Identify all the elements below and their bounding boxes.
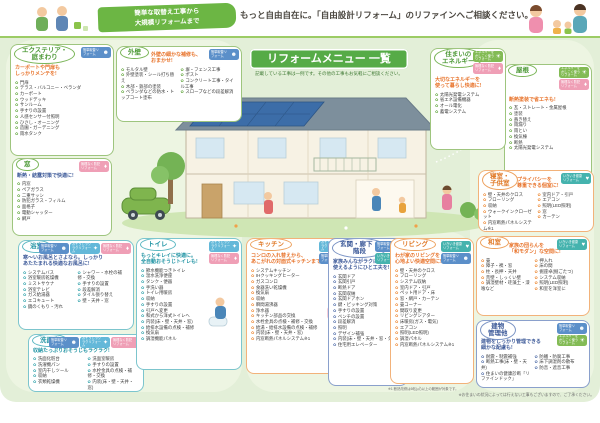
- flower-bullet-icon: ✿: [435, 92, 438, 97]
- flower-bullet-icon: ✿: [33, 362, 36, 367]
- badge-bouhan: 無理なく防犯リフォーム♦: [79, 161, 109, 172]
- badge-label: いきいき健康リフォーム: [563, 175, 584, 182]
- badge-energy: エネルギーをかしこく使うリフォーム☀: [559, 67, 589, 78]
- flower-bullet-icon: ✿: [88, 368, 91, 373]
- flower-bullet-icon: ✿: [15, 102, 18, 107]
- badge-group: 簡単取替リフォーム☻おそうじラクラクリフォーム✦無理なく防犯リフォーム♦: [39, 243, 131, 254]
- flower-bullet-icon: ✿: [121, 84, 124, 89]
- menu-item: ✿コンクリート工事・タイル工事: [181, 78, 238, 89]
- flower-bullet-icon: ✿: [15, 108, 18, 113]
- flower-bullet-icon: ✿: [251, 290, 254, 295]
- toilet-figure-illustration: [205, 295, 233, 329]
- flower-bullet-icon: ✿: [535, 365, 538, 370]
- flower-bullet-icon: ✿: [121, 89, 124, 94]
- menu-list: ✿畳✿障子・襖・窓✿柱・長押・天井✿荒壁・しっくい壁✿調湿壁材・珪藻土・漆喰など: [481, 258, 532, 292]
- section-tagline: 断熱・結露対策で快適に!: [17, 173, 107, 179]
- heart-icon: ♥: [581, 242, 585, 248]
- menu-item: ✿鏡のくもり・汚れ: [23, 304, 75, 310]
- badge-kenko: いきいき健康リフォーム♥: [441, 241, 471, 252]
- menu-list: ✿押入れ✿床の間✿掘座卓(掘ごたつ)✿システム収納✿照明(LED照明)✿和室を洋…: [535, 258, 586, 292]
- section-title: トイレ: [140, 238, 176, 251]
- flower-bullet-icon: ✿: [509, 128, 512, 133]
- header-headline: もっと自由自在に。「自由設計リフォーム」のリファインへご相談ください。: [240, 11, 540, 20]
- badge-label: いきいき健康リフォーム: [559, 241, 580, 248]
- flower-bullet-icon: ✿: [251, 268, 254, 273]
- section-energy: 住まいの エネルギー エネルギーをかしこく使うリフォーム☀無理なく防犯リフォーム…: [430, 48, 506, 150]
- flower-bullet-icon: ✿: [509, 134, 512, 139]
- badge-petit: 簡単取替リフォーム☻: [441, 253, 471, 264]
- badge-petit: 簡単取替リフォーム☻: [209, 49, 239, 60]
- badge-label: 簡単取替リフォーム: [443, 255, 462, 262]
- flower-bullet-icon: ✿: [535, 354, 538, 359]
- flower-bullet-icon: ✿: [538, 209, 541, 214]
- flower-bullet-icon: ✿: [435, 109, 438, 114]
- flower-bullet-icon: ✿: [535, 280, 538, 285]
- open-room: [356, 180, 414, 218]
- section-tatemono: 建物 管理他 簡単取替リフォーム☻エネルギーをかしこく使うリフォーム☀ 建物をし…: [476, 320, 590, 388]
- flower-bullet-icon: ✿: [435, 103, 438, 108]
- flower-bullet-icon: ✿: [481, 280, 484, 285]
- badge-label: おそうじラクラクリフォーム: [82, 337, 102, 348]
- header-ribbon: 簡単な取替え工事から 大規模リフォームまで: [98, 3, 237, 33]
- flower-bullet-icon: ✿: [251, 302, 254, 307]
- family-icon: ☻: [463, 256, 469, 262]
- section-gaiheki: 外壁 簡単取替リフォーム☻ 外壁の細かな補修も、 おまかせ! ✿モルタル壁✿外壁…: [116, 46, 242, 122]
- badge-kenko: いきいき健康リフォーム♥: [557, 239, 587, 250]
- section-toilet: トイレ おそうじラクラクリフォーム✦無理なく防犯リフォーム♦ もっとキレイに快適…: [136, 238, 242, 370]
- flower-bullet-icon: ✿: [538, 203, 541, 208]
- family-icon: ☻: [231, 52, 237, 58]
- flower-bullet-icon: ✿: [481, 359, 484, 364]
- badge-label: 簡単取替リフォーム: [211, 51, 230, 58]
- flower-bullet-icon: ✿: [17, 210, 20, 215]
- flower-bullet-icon: ✿: [481, 354, 484, 359]
- flower-bullet-icon: ✿: [141, 325, 144, 330]
- badge-group: いきいき健康リフォーム♥: [561, 173, 591, 184]
- menu-list: ✿壁・天井のクロス✿フローリング✿システム収納✿室内ドア・引戸✿ペット用ドア・床…: [395, 268, 469, 348]
- flower-bullet-icon: ✿: [483, 203, 486, 208]
- badge-bouhan: 無理なく防犯リフォーム♦: [473, 63, 503, 74]
- flower-bullet-icon: ✿: [88, 391, 91, 392]
- flower-bullet-icon: ✿: [17, 198, 20, 203]
- badge-label: 無理なく防犯リフォーム: [81, 163, 103, 170]
- flower-bullet-icon: ✿: [333, 342, 336, 347]
- section-title: 屋根: [508, 64, 537, 77]
- section-title: 外壁: [120, 46, 149, 59]
- bag-icon: ♦: [584, 82, 587, 88]
- flower-bullet-icon: ✿: [23, 292, 26, 297]
- menu-item: ✿内装(床・壁・天井・窓): [88, 379, 140, 390]
- badge-group: エネルギーをかしこく使うリフォーム☀無理なく防犯リフォーム♦: [559, 67, 589, 90]
- flower-bullet-icon: ✿: [333, 336, 336, 341]
- flower-bullet-icon: ✿: [395, 330, 398, 335]
- menu-item: ✿給湯・給排水設備の点検・補修: [88, 391, 140, 392]
- menu-list: ✿塀・フェンス工事✿ポスト✿コンクリート工事・タイル工事✿スロープなどの段差解消: [181, 67, 238, 101]
- flower-bullet-icon: ✿: [395, 336, 398, 341]
- family-icon: ☻: [71, 340, 77, 346]
- flower-bullet-icon: ✿: [333, 274, 336, 279]
- person-figure: [264, 200, 273, 214]
- menu-item: ✿内窓断熱パネルシステム※1: [483, 220, 535, 231]
- flower-bullet-icon: ✿: [395, 273, 398, 278]
- section-title: キッチン: [250, 238, 292, 251]
- section-yane: 屋根 エネルギーをかしこく使うリフォーム☀無理なく防犯リフォーム♦ 断熱塗装で省…: [504, 64, 592, 182]
- flower-bullet-icon: ✿: [141, 330, 144, 335]
- menu-list: ✿壁・天井のクロス✿フローリング✿収納✿ウォークインクローゼット✿内窓断熱パネル…: [483, 192, 535, 232]
- bag-icon: ♦: [126, 246, 129, 252]
- flower-bullet-icon: ✿: [251, 285, 254, 290]
- flower-bullet-icon: ✿: [333, 285, 336, 290]
- flower-bullet-icon: ✿: [15, 131, 18, 136]
- menu-list: ✿洗面化粧台✿洗濯機パン✿室内干しツール✿収納✿衣類乾燥機: [33, 356, 85, 392]
- flower-bullet-icon: ✿: [141, 319, 144, 324]
- badge-group: いきいき健康リフォーム♥: [557, 239, 587, 250]
- flower-bullet-icon: ✿: [17, 193, 20, 198]
- flower-bullet-icon: ✿: [535, 286, 538, 291]
- section-senmen: 洗面室 簡単取替リフォーム☻おそうじラクラクリフォーム✦無理なく防犯リフォーム♦…: [28, 334, 144, 392]
- flower-bullet-icon: ✿: [509, 117, 512, 122]
- flower-bullet-icon: ✿: [88, 379, 91, 384]
- sparkle-icon: ✦: [103, 340, 108, 346]
- badge-label: エネルギーをかしこく使うリフォーム: [561, 67, 581, 78]
- menu-list: ✿門扉✿テラス・バルコニー・ベランダ✿カーポート✿ウッドデッキ✿サンルーム✿手す…: [15, 80, 109, 137]
- badge-souji: おそうじラクラクリフォーム✦: [70, 243, 100, 254]
- flower-bullet-icon: ✿: [395, 308, 398, 313]
- badge-petit: 簡単取替リフォーム☻: [81, 47, 111, 58]
- badge-group: 簡単取替リフォーム☻エネルギーをかしこく使うリフォーム☀: [557, 323, 587, 346]
- sparkle-icon: ✦: [232, 244, 237, 250]
- flower-bullet-icon: ✿: [33, 373, 36, 378]
- flower-bullet-icon: ✿: [251, 273, 254, 278]
- menu-list: ✿節水機能つきトイレ✿温水洗浄便座✿タンク・便器✿手洗い器✿トイレ用暖房✿収納✿…: [141, 268, 207, 342]
- flower-bullet-icon: ✿: [535, 275, 538, 280]
- menu-item: ✿太陽光発電システム: [509, 145, 587, 151]
- front-door: [202, 184, 222, 218]
- section-mado: 窓 無理なく防犯リフォーム♦ 断熱・結露対策で快適に! ✿内窓✿ペアガラス✿二重…: [12, 158, 112, 236]
- menu-item: ✿雨水タンク: [15, 131, 109, 137]
- menu-item: ✿断熱工事(床・壁・天井): [481, 359, 532, 370]
- flower-bullet-icon: ✿: [121, 72, 124, 77]
- flower-bullet-icon: ✿: [395, 279, 398, 284]
- badge-bouhan: 無理なく防犯リフォーム♦: [559, 79, 589, 90]
- menu-item: ✿住まいの健康診断「リファインドック」: [481, 371, 532, 382]
- section-living: リビング いきいき健康リフォーム♥簡単取替リフォーム☻ わが家のリビングを 心地…: [390, 238, 474, 384]
- left-family-illustration: [28, 4, 94, 34]
- flower-bullet-icon: ✿: [538, 197, 541, 202]
- flower-bullet-icon: ✿: [141, 336, 144, 341]
- flower-bullet-icon: ✿: [395, 290, 398, 295]
- window-1f: [234, 182, 264, 204]
- flower-bullet-icon: ✿: [33, 368, 36, 373]
- flower-bullet-icon: ✿: [15, 114, 18, 119]
- flower-bullet-icon: ✿: [141, 285, 144, 290]
- window-1f: [284, 182, 318, 204]
- badge-label: 簡単取替リフォーム: [83, 49, 102, 56]
- flower-bullet-icon: ✿: [395, 268, 398, 273]
- flower-bullet-icon: ✿: [251, 336, 254, 341]
- flower-bullet-icon: ✿: [141, 273, 144, 278]
- flower-bullet-icon: ✿: [15, 120, 18, 125]
- flower-bullet-icon: ✿: [23, 304, 26, 309]
- flower-bullet-icon: ✿: [538, 214, 541, 219]
- sun-icon: ☀: [582, 70, 587, 76]
- flower-bullet-icon: ✿: [395, 285, 398, 290]
- flower-bullet-icon: ✿: [509, 105, 512, 110]
- flower-bullet-icon: ✿: [121, 67, 124, 72]
- menu-item: ✿外壁塗装・シール打ち替え: [121, 72, 178, 83]
- flower-bullet-icon: ✿: [333, 331, 336, 336]
- menu-list: ✿シャワー・水栓の補修・交換✿手すりの設置✿段差解消✿タイル張り替え✿壁・天井・…: [78, 270, 130, 310]
- flower-bullet-icon: ✿: [481, 371, 484, 376]
- badge-label: おそうじラクラクリフォーム: [72, 243, 92, 254]
- flower-bullet-icon: ✿: [395, 302, 398, 307]
- menu-item: ✿和室を洋室に: [535, 286, 586, 292]
- flower-bullet-icon: ✿: [33, 356, 36, 361]
- flower-bullet-icon: ✿: [395, 296, 398, 301]
- section-exterior: エクステリア・ 庭まわり 簡単取替リフォーム☻ カーポートや門扉も しっかりメン…: [10, 44, 114, 156]
- window-2f: [320, 138, 346, 158]
- flower-bullet-icon: ✿: [483, 220, 486, 225]
- flower-bullet-icon: ✿: [141, 296, 144, 301]
- flower-bullet-icon: ✿: [23, 281, 26, 286]
- flower-bullet-icon: ✿: [251, 296, 254, 301]
- badge-group: 簡単取替リフォーム☻: [81, 47, 111, 58]
- section-title: リビング: [394, 238, 436, 251]
- flower-bullet-icon: ✿: [435, 97, 438, 102]
- badge-souji: おそうじラクラクリフォーム✦: [80, 337, 110, 348]
- section-title: 寝室・ 子供室: [482, 170, 518, 190]
- sun-icon: ☀: [580, 338, 585, 344]
- flower-bullet-icon: ✿: [78, 281, 81, 286]
- flower-bullet-icon: ✿: [251, 330, 254, 335]
- window-2f: [258, 138, 286, 158]
- header: 簡単な取替え工事から 大規模リフォームまで もっと自由自在に。「自由設計リフォー…: [0, 0, 600, 38]
- menu-item: ✿ベランダなどの防水・トップコート塗布: [121, 89, 178, 100]
- footnote-insulation: ※1 断熱改修は6帖(㎡)以上の範囲が対象です。: [388, 386, 476, 391]
- window-2f: [378, 138, 406, 158]
- badge-label: いきいき健康リフォーム: [443, 243, 464, 250]
- menu-list: ✿室内ドア・引戸✿エアコン✿照明(LED照明)✿窓✿カーテン: [538, 192, 590, 232]
- flower-bullet-icon: ✿: [17, 204, 20, 209]
- badge-label: エネルギーをかしこく使うリフォーム: [559, 335, 579, 346]
- family-icon: ☻: [103, 50, 109, 56]
- flower-bullet-icon: ✿: [88, 356, 91, 361]
- badge-bouhan: 無理なく防犯リフォーム♦: [101, 243, 131, 254]
- flower-bullet-icon: ✿: [333, 314, 336, 319]
- badge-kenko: いきいき健康リフォーム♥: [561, 173, 591, 184]
- flower-bullet-icon: ✿: [333, 325, 336, 330]
- badge-bouhan: 無理なく防犯リフォーム♦: [209, 253, 239, 264]
- flower-bullet-icon: ✿: [535, 263, 538, 268]
- flower-bullet-icon: ✿: [251, 313, 254, 318]
- menu-item: ✿防音・遮音工事: [535, 365, 586, 371]
- menu-item: ✿水栓金具の点検・補修・交換: [88, 368, 140, 379]
- flower-bullet-icon: ✿: [17, 181, 20, 186]
- flower-bullet-icon: ✿: [141, 308, 144, 313]
- flower-bullet-icon: ✿: [78, 292, 81, 297]
- flower-bullet-icon: ✿: [23, 287, 26, 292]
- tree-trunk: [168, 176, 173, 204]
- heart-icon: ♥: [465, 244, 469, 250]
- flower-bullet-icon: ✿: [535, 258, 538, 263]
- flower-bullet-icon: ✿: [33, 379, 36, 384]
- section-tagline: 収納たっぷりおそうじもラクラク!: [33, 348, 139, 354]
- badge-group: 無理なく防犯リフォーム♦: [79, 161, 109, 172]
- menu-item: ✿衣類乾燥機: [33, 379, 85, 385]
- badge-group: いきいき健康リフォーム♥簡単取替リフォーム☻: [441, 241, 471, 264]
- badge-energy: エネルギーをかしこく使うリフォーム☀: [557, 335, 587, 346]
- badge-group: 簡単取替リフォーム☻おそうじラクラクリフォーム✦無理なく防犯リフォーム♦: [49, 337, 141, 348]
- bush: [460, 202, 476, 218]
- menu-item: ✿網戸: [17, 216, 107, 222]
- badge-petit: 簡単取替リフォーム☻: [39, 243, 69, 254]
- flower-bullet-icon: ✿: [141, 313, 144, 318]
- flower-bullet-icon: ✿: [481, 275, 484, 280]
- person-figure: [372, 196, 381, 211]
- flower-bullet-icon: ✿: [15, 91, 18, 96]
- section-title: 建物 管理他: [480, 320, 516, 340]
- section-tagline: 寒〜いお風呂とさよなら。しっかり あたたまれる快適なお風呂に!: [23, 255, 129, 268]
- flower-bullet-icon: ✿: [15, 97, 18, 102]
- flower-bullet-icon: ✿: [23, 275, 26, 280]
- flower-bullet-icon: ✿: [23, 270, 26, 275]
- flower-bullet-icon: ✿: [17, 187, 20, 192]
- badge-group: おそうじラクラクリフォーム✦無理なく防犯リフォーム♦: [209, 241, 239, 264]
- bag-icon: ♦: [234, 256, 237, 262]
- menu-list: ✿内窓✿ペアガラス✿二重サッシ✿防犯ガラス・フィルム✿面格子✿電動シャッター✿網…: [17, 181, 107, 221]
- menu-item: ✿壁・天井・窓: [78, 298, 130, 304]
- flower-bullet-icon: ✿: [15, 85, 18, 90]
- footnote-bottom: ※お住まいの状況によっては行えない工事もございますので、ご了承ください。: [300, 392, 594, 398]
- flower-bullet-icon: ✿: [181, 78, 184, 83]
- flower-bullet-icon: ✿: [15, 80, 18, 85]
- section-title: エクステリア・ 庭まわり: [14, 44, 75, 64]
- menu-banner-subtitle: 記載している工事は一例です。その他の工事もお気軽にご相談ください。: [224, 71, 434, 77]
- flower-bullet-icon: ✿: [483, 209, 486, 214]
- menu-list: ✿瓦・ストレート・金属屋根✿塗装✿葺き替え✿雨漏り✿雨とい✿換気棟✿断熱✿太陽光…: [509, 105, 587, 151]
- menu-item: ✿スロープなどの段差解消: [181, 89, 238, 95]
- badge-label: おそうじラクラクリフォーム: [211, 241, 231, 252]
- menu-item: ✿調湿機能パネル: [141, 336, 207, 342]
- flower-bullet-icon: ✿: [333, 308, 336, 313]
- flower-bullet-icon: ✿: [509, 145, 512, 150]
- menu-item: ✿蓄電システム: [435, 109, 501, 115]
- section-washitsu: 和室 いきいき健康リフォーム♥ 家族の団らんを 「和モダン」な空間に! ✿畳✿障…: [476, 236, 590, 316]
- flower-bullet-icon: ✿: [251, 279, 254, 284]
- window-2f: [196, 138, 224, 158]
- flower-bullet-icon: ✿: [181, 67, 184, 72]
- menu-item: ✿ウォークインクローゼット: [483, 209, 535, 220]
- flower-bullet-icon: ✿: [78, 298, 81, 303]
- badge-energy: エネルギーをかしこく使うリフォーム☀: [473, 51, 503, 62]
- heart-icon: ♥: [585, 176, 589, 182]
- family-icon: ☻: [579, 326, 585, 332]
- flower-bullet-icon: ✿: [88, 362, 91, 367]
- flower-bullet-icon: ✿: [181, 89, 184, 94]
- flower-bullet-icon: ✿: [15, 125, 18, 130]
- right-family-illustration: [524, 2, 598, 34]
- menu-list: ✿太陽光発電システム✿省エネ設備機器✿オール電化✿蓄電システム: [435, 92, 501, 115]
- section-tagline: 大切なエネルギーを 使って暮らし快適に!: [435, 77, 501, 90]
- flower-bullet-icon: ✿: [141, 290, 144, 295]
- flower-bullet-icon: ✿: [181, 72, 184, 77]
- badge-group: 簡単取替リフォーム☻: [209, 49, 239, 60]
- bag-icon: ♦: [498, 66, 501, 72]
- menu-list: ✿洗面室暖房✿手すりの設置✿水栓金具の点検・補修・交換✿内装(床・壁・天井・窓)…: [88, 356, 140, 392]
- sparkle-icon: ✦: [93, 246, 98, 252]
- menu-list: ✿防蟻・防腐工事✿床下調湿剤の散布✿防音・遮音工事: [535, 354, 586, 383]
- flower-bullet-icon: ✿: [483, 197, 486, 202]
- flower-bullet-icon: ✿: [333, 302, 336, 307]
- flower-bullet-icon: ✿: [395, 342, 398, 347]
- flower-bullet-icon: ✿: [509, 111, 512, 116]
- flower-bullet-icon: ✿: [141, 302, 144, 307]
- menu-item: ✿シャワー・水栓の補修・交換: [78, 270, 130, 281]
- badge-label: 無理なく防犯リフォーム: [103, 245, 125, 252]
- flower-bullet-icon: ✿: [395, 319, 398, 324]
- flower-bullet-icon: ✿: [481, 258, 484, 263]
- badge-label: 無理なく防犯リフォーム: [561, 81, 583, 88]
- section-shinshitsu: 寝室・ 子供室 いきいき健康リフォーム♥ プライバシーを 尊重できる個室に! ✿…: [478, 170, 594, 232]
- badge-label: 無理なく防犯リフォーム: [113, 339, 135, 346]
- menu-banner-title: リフォームメニュー 一覧: [250, 49, 408, 69]
- flower-bullet-icon: ✿: [78, 270, 81, 275]
- flower-bullet-icon: ✿: [333, 319, 336, 324]
- menu-item: ✿調湿壁材・珪藻土・漆喰など: [481, 280, 532, 291]
- section-title: 和室: [480, 236, 509, 249]
- section-tagline: カーポートや門扉も しっかりメンテを!: [15, 65, 109, 78]
- flower-bullet-icon: ✿: [509, 140, 512, 145]
- gardener-figure: [442, 194, 452, 210]
- flower-bullet-icon: ✿: [17, 216, 20, 221]
- badge-petit: 簡単取替リフォーム☻: [557, 323, 587, 334]
- flower-bullet-icon: ✿: [23, 298, 26, 303]
- flower-bullet-icon: ✿: [538, 192, 541, 197]
- flower-bullet-icon: ✿: [333, 291, 336, 296]
- section-tagline: 断熱塗装で省エネも!: [509, 97, 587, 103]
- badge-label: 簡単取替リフォーム: [51, 339, 70, 346]
- flower-bullet-icon: ✿: [141, 279, 144, 284]
- flower-bullet-icon: ✿: [481, 263, 484, 268]
- badge-souji: おそうじラクラクリフォーム✦: [209, 241, 239, 252]
- section-title: 窓: [16, 158, 39, 171]
- flower-bullet-icon: ✿: [483, 192, 486, 197]
- badge-label: 簡単取替リフォーム: [41, 245, 60, 252]
- menu-list: ✿耐震・制震補強✿断熱工事(床・壁・天井)✿住まいの健康診断「リファインドック」: [481, 354, 532, 383]
- family-icon: ☻: [61, 246, 67, 252]
- flower-bullet-icon: ✿: [251, 325, 254, 330]
- flower-bullet-icon: ✿: [251, 319, 254, 324]
- menu-item: ✿内窓断熱パネルシステム※1: [395, 342, 469, 348]
- menu-list: ✿モルタル壁✿外壁塗装・シール打ち替え✿木部・鉄部の塗装✿ベランダなどの防水・ト…: [121, 67, 178, 101]
- menu-item: ✿カーテン: [538, 214, 590, 220]
- flower-bullet-icon: ✿: [141, 268, 144, 273]
- badge-petit: 簡単取替リフォーム☻: [49, 337, 79, 348]
- badge-label: 簡単取替リフォーム: [559, 325, 578, 332]
- flower-bullet-icon: ✿: [395, 313, 398, 318]
- badge-label: 無理なく防犯リフォーム: [475, 65, 497, 72]
- flower-bullet-icon: ✿: [481, 269, 484, 274]
- flower-bullet-icon: ✿: [535, 269, 538, 274]
- flower-bullet-icon: ✿: [395, 325, 398, 330]
- sun-icon: ☀: [496, 54, 501, 60]
- child-figure: [399, 203, 406, 213]
- badge-label: 無理なく防犯リフォーム: [211, 255, 233, 262]
- flower-bullet-icon: ✿: [333, 279, 336, 284]
- flower-bullet-icon: ✿: [509, 122, 512, 127]
- flower-bullet-icon: ✿: [251, 308, 254, 313]
- section-yokushitsu: 浴室 簡単取替リフォーム☻おそうじラクラクリフォーム✦無理なく防犯リフォーム♦ …: [18, 240, 134, 330]
